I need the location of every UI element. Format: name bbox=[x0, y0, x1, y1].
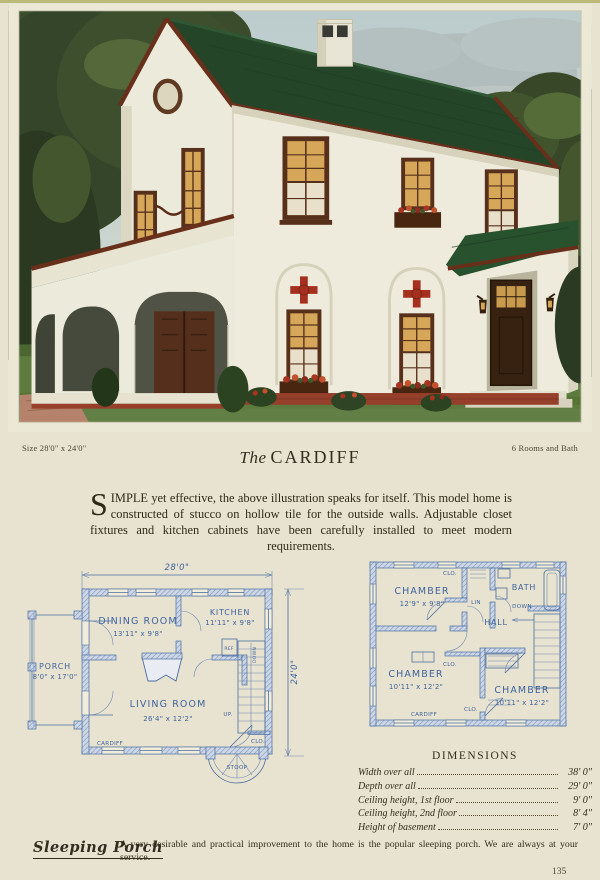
clo-label: CLO. bbox=[251, 739, 265, 745]
sleeping-porch-text: A very desirable and practical improveme… bbox=[120, 838, 578, 864]
clo-bottom-label: CLO. bbox=[464, 707, 478, 713]
plan1-stairs bbox=[222, 639, 265, 733]
dimensions-list: DIMENSIONS Width over all 38' 0" Depth o… bbox=[358, 750, 592, 835]
bath-label: BATH bbox=[512, 583, 536, 592]
porch-size: 8'0" x 17'0" bbox=[33, 673, 78, 681]
house-illustration-frame bbox=[8, 4, 592, 432]
description-text: IMPLE yet effective, the above illustrat… bbox=[90, 491, 512, 552]
dimension-row: Depth over all 29' 0" bbox=[358, 780, 592, 794]
chamber3-size: 10'11" x 12'2" bbox=[495, 699, 549, 707]
up-label: UP. bbox=[223, 712, 232, 718]
dining-room-label: DINING ROOM bbox=[98, 616, 177, 627]
oval-vent bbox=[155, 81, 180, 112]
dimension-row: Width over all 38' 0" bbox=[358, 766, 592, 780]
second-floor-plan: CHAMBER 12'9" x 9'8" BATH LIN HALL DOWN … bbox=[350, 556, 598, 758]
chamber2-size: 10'11" x 12'2" bbox=[389, 683, 443, 691]
description-paragraph: SIMPLE yet effective, the above illustra… bbox=[90, 491, 512, 554]
kitchen-label: KITCHEN bbox=[210, 608, 250, 617]
dimensions-title: DIMENSIONS bbox=[358, 750, 592, 762]
down-label-2: DOWN bbox=[512, 604, 532, 610]
chamber2-label: CHAMBER bbox=[388, 669, 443, 680]
cardiff-label-1: CARDIFF bbox=[97, 741, 123, 747]
bath-sink bbox=[498, 569, 510, 578]
stoop-label: STOOP bbox=[227, 765, 248, 771]
porch-label: PORCH bbox=[39, 662, 71, 671]
linen-shelves bbox=[470, 570, 486, 578]
kitchen-size: 11'11" x 9'8" bbox=[205, 619, 255, 627]
dotted-leader bbox=[456, 802, 558, 803]
hall-label: HALL bbox=[484, 618, 508, 627]
page-top-edge bbox=[0, 0, 600, 3]
page-number: 135 bbox=[552, 867, 566, 877]
dimension-row: Ceiling height, 2nd floor 8' 4" bbox=[358, 807, 592, 821]
clo-mid-label: CLO. bbox=[443, 662, 457, 668]
svg-text:28'0": 28'0" bbox=[165, 563, 190, 573]
dotted-leader bbox=[438, 829, 558, 830]
dimension-row: Ceiling height, 1st floor 9' 0" bbox=[358, 794, 592, 808]
drop-cap: S bbox=[90, 491, 111, 517]
cardiff-label-2: CARDIFF bbox=[411, 712, 437, 718]
svg-text:24'0": 24'0" bbox=[290, 660, 300, 685]
dotted-leader bbox=[459, 815, 558, 816]
bathtub bbox=[544, 570, 560, 610]
front-door bbox=[491, 280, 532, 385]
page-title: TheCARDIFF bbox=[0, 447, 600, 468]
dining-room-size: 13'11" x 9'8" bbox=[113, 630, 163, 638]
gable-window-right bbox=[181, 148, 204, 228]
ref-label: REF bbox=[224, 646, 233, 652]
window-box-center bbox=[394, 205, 441, 227]
chamber1-size: 12'9" x 9'8" bbox=[400, 600, 445, 608]
dotted-leader bbox=[417, 774, 558, 775]
chamber3-label: CHAMBER bbox=[494, 685, 549, 696]
porch-arch-far bbox=[35, 314, 54, 393]
living-room-label: LIVING ROOM bbox=[130, 699, 207, 710]
dotted-leader bbox=[418, 788, 558, 789]
title-prefix: The bbox=[239, 448, 266, 467]
upstairs-window-left bbox=[280, 136, 333, 225]
fireplace bbox=[142, 657, 182, 681]
chimney bbox=[318, 20, 353, 67]
title-name: CARDIFF bbox=[270, 447, 360, 467]
dimension-row: Height of basement 7' 0" bbox=[358, 821, 592, 835]
upstairs-window-center bbox=[394, 158, 441, 228]
lin-label: LIN bbox=[471, 600, 481, 606]
clo-top-label: CLO. bbox=[443, 571, 457, 577]
down-label: DOWN bbox=[252, 647, 258, 663]
first-floor-plan: 28'0" 24'0" bbox=[16, 551, 316, 831]
chamber1-label: CHAMBER bbox=[394, 586, 449, 597]
house-illustration bbox=[8, 4, 592, 432]
living-room-size: 26'4" x 12'2" bbox=[143, 715, 193, 723]
